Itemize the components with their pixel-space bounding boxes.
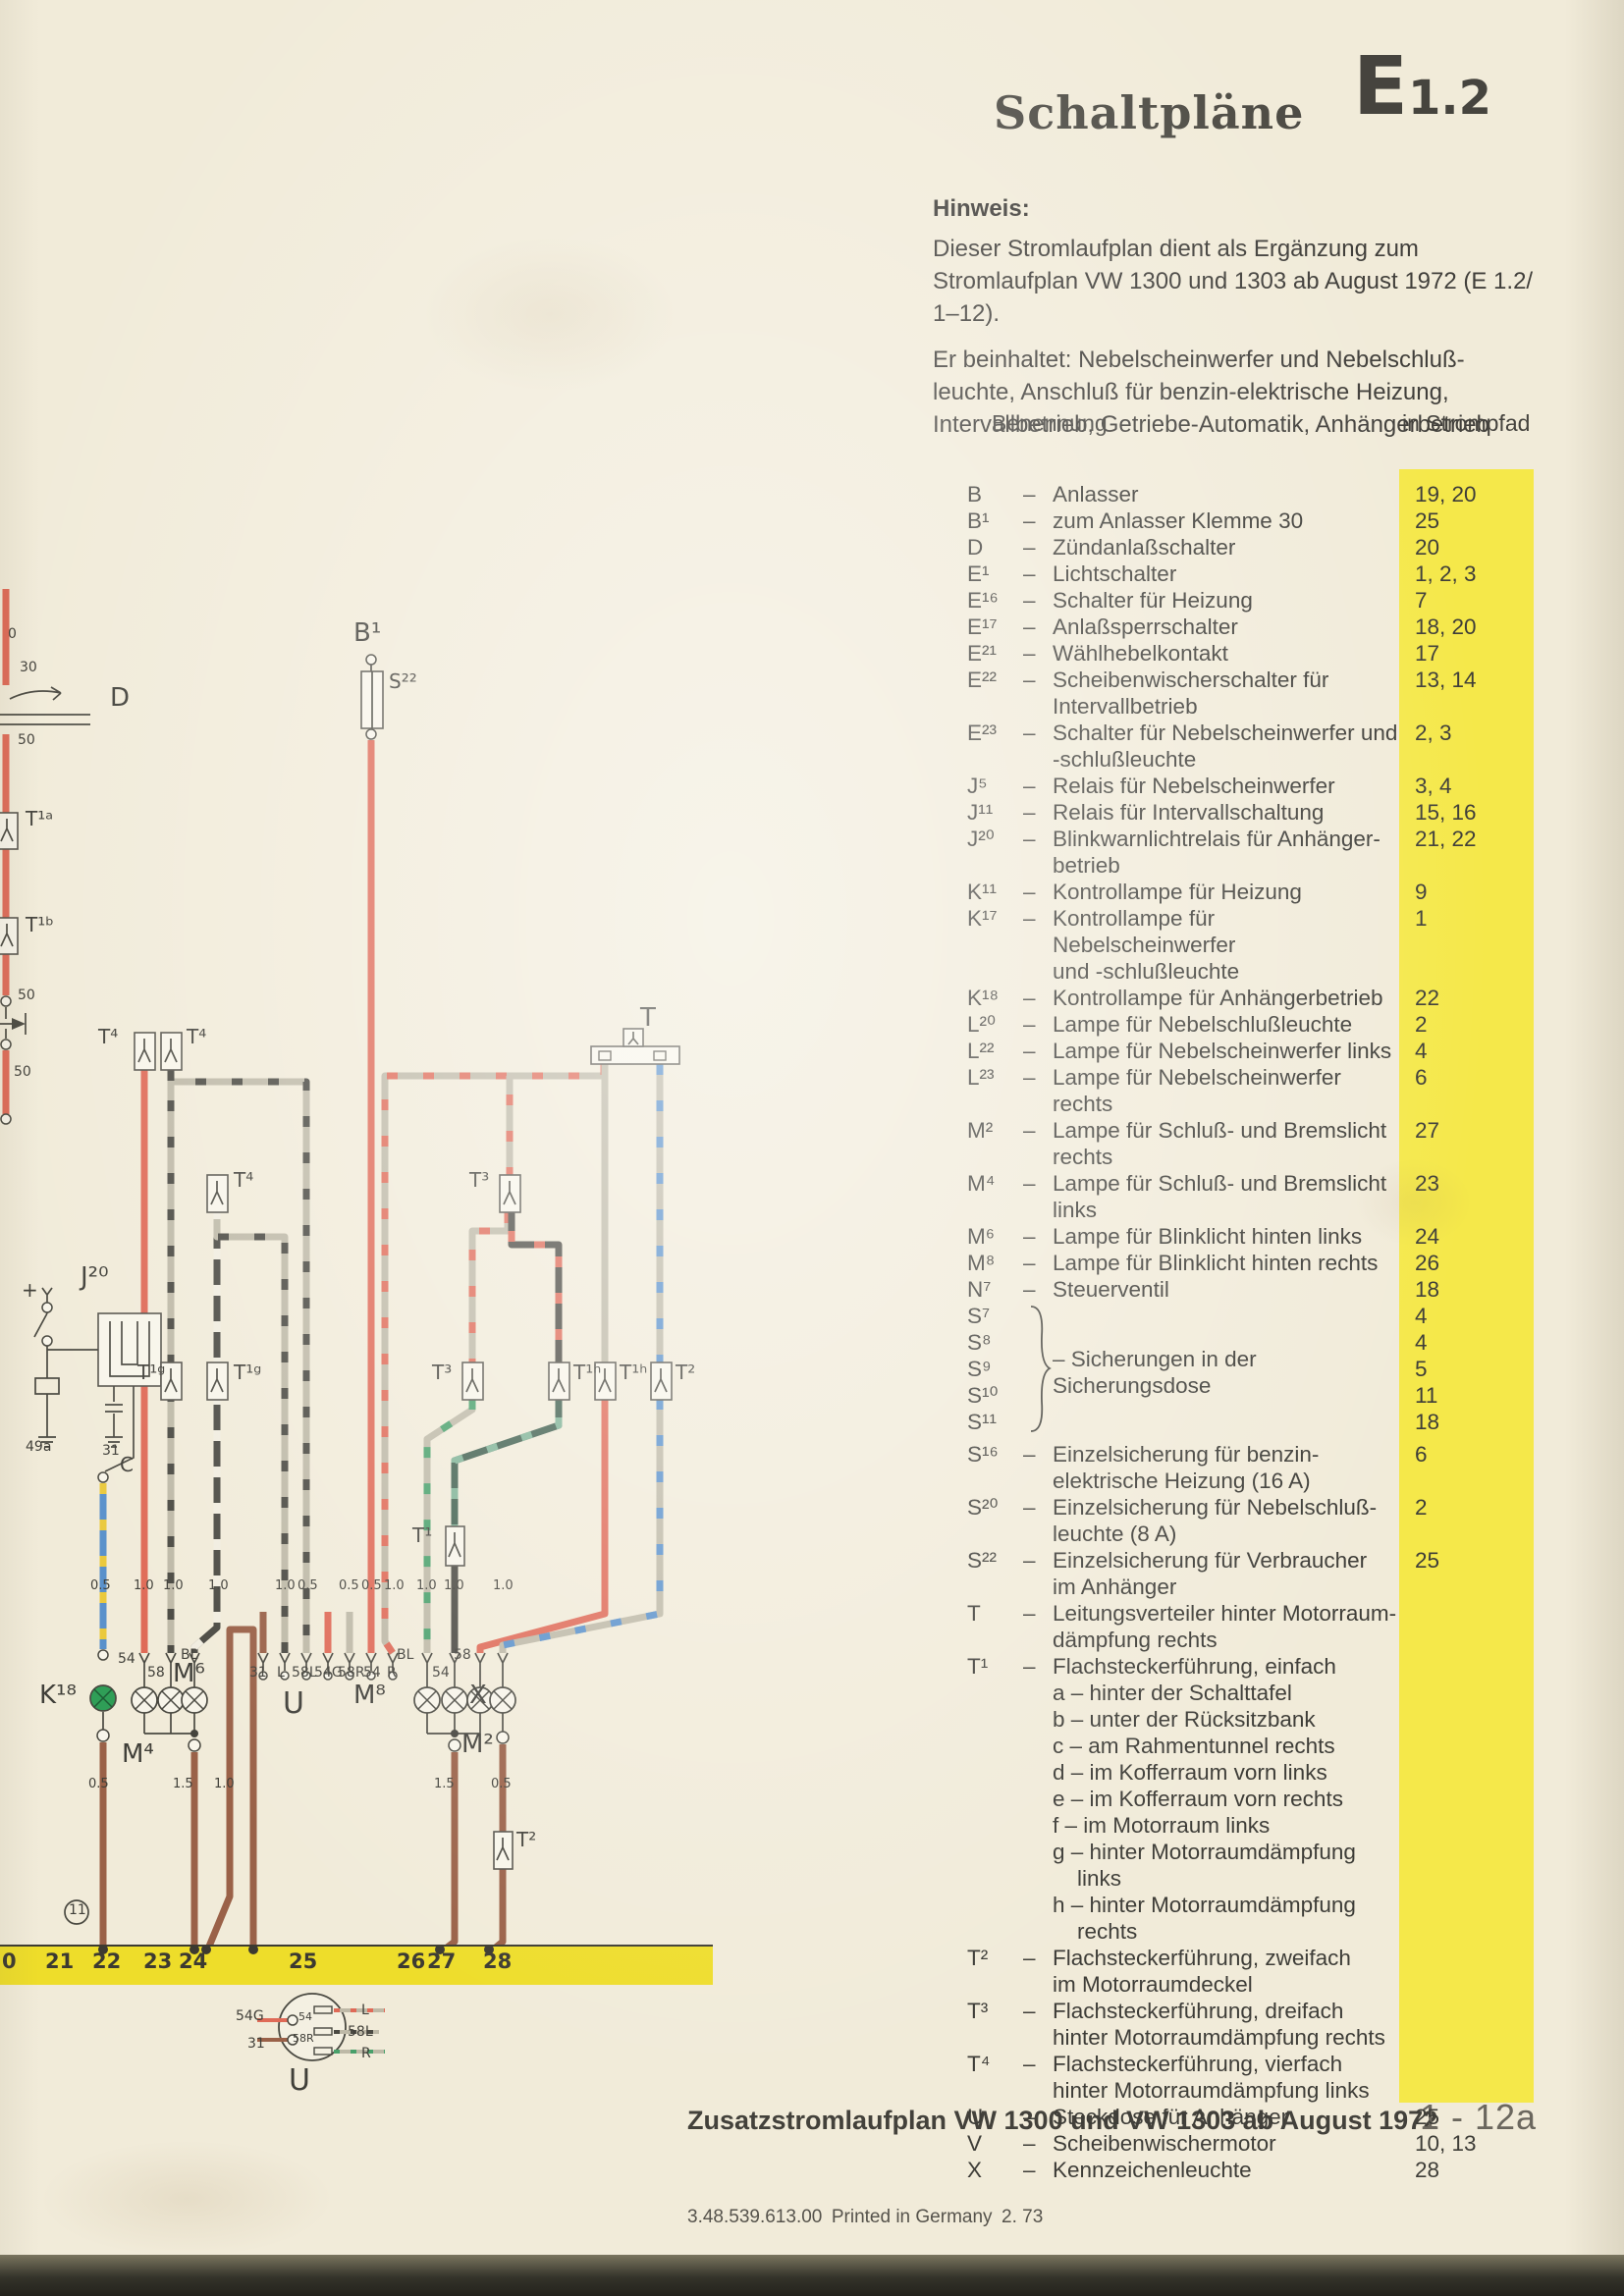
- legend-row: L²³–Lampe für Nebelscheinwerfer rechts6: [967, 1064, 1537, 1117]
- legend-code: J²⁰: [967, 826, 1023, 852]
- legend-strompfad-value: 18, 20: [1402, 614, 1537, 640]
- flat-connector-t1h-b: [595, 1362, 616, 1400]
- legend-code: T⁴: [967, 2051, 1023, 2077]
- legend-description-line: Anlasser: [1053, 481, 1402, 507]
- flat-connector-t4-mid: [207, 1175, 228, 1212]
- legend-description-line: Steckdose für Anhänger: [1053, 2104, 1402, 2130]
- legend-description: Flachsteckerführung, zweifachim Motorrau…: [1053, 1945, 1402, 1998]
- flat-connector-t3-row: [462, 1362, 483, 1400]
- legend-description: Einzelsicherung für Nebelschluß-leuchte …: [1053, 1494, 1402, 1547]
- legend-row: J⁵–Relais für Nebelscheinwerfer3, 4: [967, 773, 1537, 799]
- pin-end-circle: [367, 1672, 375, 1680]
- legend-row: M²–Lampe für Schluß- und Bremslichtrecht…: [967, 1117, 1537, 1170]
- legend-row: M⁶–Lampe für Blinklicht hinten links24: [967, 1223, 1537, 1250]
- legend-description-line: Flachsteckerführung, zweifach: [1053, 1945, 1402, 1971]
- text-line: S⁷: [967, 1303, 1023, 1329]
- legend-description-line: Lampe für Schluß- und Bremslicht: [1053, 1117, 1402, 1144]
- legend-row: T¹–Flachsteckerführung, einfacha – hinte…: [967, 1653, 1537, 1945]
- legend-row: X–Kennzeichenleuchte28: [967, 2157, 1537, 2183]
- page-title: Schaltpläne: [994, 86, 1318, 139]
- legend-row: B–Anlasser19, 20: [967, 481, 1537, 507]
- flat-connector-t1g-b: [207, 1362, 228, 1400]
- legend-description: Relais für Intervallschaltung: [1053, 799, 1402, 826]
- legend-row: K¹¹–Kontrollampe für Heizung9: [967, 879, 1537, 905]
- legend-description-line: hinter Motorraumdämpfung rechts: [1053, 2024, 1402, 2051]
- legend-dash: –: [1023, 667, 1053, 693]
- j20-c-lead: [105, 1386, 134, 1471]
- legend-row: E²³–Schalter für Nebelscheinwerfer und-s…: [967, 720, 1537, 773]
- pin-fork-icon: [366, 1653, 376, 1671]
- legend-dash: –: [1023, 1011, 1053, 1038]
- legend-header-name: Benennung: [992, 410, 1108, 436]
- legend-description-line: Einzelsicherung für benzin-: [1053, 1441, 1402, 1468]
- legend-row: U–Steckdose für Anhänger25: [967, 2104, 1537, 2130]
- legend-description: Kontrollampe für Nebelscheinwerferund -s…: [1053, 905, 1402, 985]
- pin-fork-icon: [258, 1653, 268, 1671]
- component-legend: B–Anlasser19, 20B¹–zum Anlasser Klemme 3…: [967, 481, 1537, 2183]
- legend-strompfad-value: 1: [1402, 905, 1537, 932]
- legend-description-line: Relais für Intervallschaltung: [1053, 799, 1402, 826]
- legend-description-line: Flachsteckerführung, vierfach: [1053, 2051, 1402, 2077]
- legend-code: L²²: [967, 1038, 1023, 1064]
- legend-code: S²⁰: [967, 1494, 1023, 1521]
- legend-dash: –: [1023, 587, 1053, 614]
- legend-row: T³–Flachsteckerführung, dreifachhinter M…: [967, 1998, 1537, 2051]
- legend-strompfad-value: 17: [1402, 640, 1537, 667]
- x-junction: [103, 1712, 503, 1732]
- legend-row: S²⁰–Einzelsicherung für Nebelschluß-leuc…: [967, 1494, 1537, 1547]
- pin-fork-icon: [475, 1653, 485, 1671]
- flat-connector-t2-lower: [494, 1832, 513, 1869]
- legend-strompfad-value: 2: [1402, 1011, 1537, 1038]
- legend-description: zum Anlasser Klemme 30: [1053, 507, 1402, 534]
- legend-row: E²²–Scheibenwischerschalter fürIntervall…: [967, 667, 1537, 720]
- legend-row: K¹⁸–Kontrollampe für Anhängerbetrieb22: [967, 985, 1537, 1011]
- flat-connector-t3-mid: [500, 1175, 520, 1212]
- legend-strompfad-value: 25: [1402, 2104, 1537, 2130]
- legend-dash: –: [1023, 1441, 1053, 1468]
- legend-dash: –: [1023, 1945, 1053, 1971]
- legend-dash: –: [1023, 826, 1053, 852]
- connection-circle: [98, 1472, 108, 1482]
- wire-m2-brown: [442, 1752, 455, 1951]
- wire-m2b-red: [480, 1399, 605, 1653]
- legend-description-line: im Anhänger: [1053, 1574, 1402, 1600]
- legend-strompfad-value: 19, 20: [1402, 481, 1537, 507]
- legend-description-line: links: [1053, 1197, 1402, 1223]
- legend-dash: –: [1023, 905, 1053, 932]
- legend-dash: –: [1023, 2130, 1053, 2157]
- pin-fork-icon: [450, 1653, 460, 1671]
- legend-dash: –: [1023, 1547, 1053, 1574]
- legend-description-line: b – unter der Rücksitzbank: [1053, 1706, 1402, 1733]
- text-line: S⁸: [967, 1329, 1023, 1356]
- legend-code: M⁸: [967, 1250, 1023, 1276]
- pin-fork-icon: [323, 1653, 333, 1671]
- legend-code: E¹: [967, 561, 1023, 587]
- legend-row: K¹⁷–Kontrollampe für Nebelscheinwerferun…: [967, 905, 1537, 985]
- legend-row: S¹⁶–Einzelsicherung für benzin-elektrisc…: [967, 1441, 1537, 1494]
- wire-p2-gray: [217, 1219, 285, 1653]
- legend-code: S¹⁶: [967, 1441, 1023, 1468]
- flat-connector-t1a: [0, 813, 18, 849]
- legend-code: T¹: [967, 1653, 1023, 1680]
- legend-description-line: hinter Motorraumdämpfung links: [1053, 2077, 1402, 2104]
- text-line: 4: [1415, 1329, 1537, 1356]
- joint-circle: [497, 1732, 509, 1743]
- legend-description-line: betrieb: [1053, 852, 1402, 879]
- legend-description: Lichtschalter: [1053, 561, 1402, 587]
- hinweis-heading: Hinweis:: [933, 192, 1561, 225]
- legend-description-line: Anlaßsperrschalter: [1053, 614, 1402, 640]
- legend-strompfad-value: 22: [1402, 985, 1537, 1011]
- legend-description-line: Lampe für Nebelscheinwerfer rechts: [1053, 1064, 1402, 1117]
- legend-row: E¹⁷–Anlaßsperrschalter18, 20: [967, 614, 1537, 640]
- legend-description-line: Blinkwarnlichtrelais für Anhänger-: [1053, 826, 1402, 852]
- bus-dot: [98, 1945, 108, 1954]
- legend-description: Scheibenwischerschalter fürIntervallbetr…: [1053, 667, 1402, 720]
- legend-description-line: Scheibenwischerschalter für: [1053, 667, 1402, 693]
- wire-t3-outB-stripes: [512, 1212, 559, 1362]
- legend-description-line: Flachsteckerführung, einfach: [1053, 1653, 1402, 1680]
- legend-rows-b: S¹⁶–Einzelsicherung für benzin-elektrisc…: [967, 1441, 1537, 2183]
- legend-dash: –: [1023, 985, 1053, 1011]
- legend-description-line: g – hinter Motorraumdämpfung: [1053, 1839, 1402, 1865]
- legend-description-line: leuchte (8 A): [1053, 1521, 1402, 1547]
- legend-description: Zündanlaßschalter: [1053, 534, 1402, 561]
- legend-strompfad-value: 25: [1402, 1547, 1537, 1574]
- legend-row: M⁸–Lampe für Blinklicht hinten rechts26: [967, 1250, 1537, 1276]
- legend-code: S²²: [967, 1547, 1023, 1574]
- legend-code: E²³: [967, 720, 1023, 746]
- connection-circle: [366, 729, 376, 739]
- legend-dash: –: [1023, 507, 1053, 534]
- j20-capacitor-lead: [105, 1386, 123, 1437]
- legend-description: Steckdose für Anhänger: [1053, 2104, 1402, 2130]
- connection-circle: [1, 1040, 11, 1049]
- note-11-circle: [65, 1900, 88, 1924]
- legend-description: Lampe für Nebelschlußleuchte: [1053, 1011, 1402, 1038]
- pin-fork-icon: [422, 1653, 432, 1671]
- legend-strompfad-value: 28: [1402, 2157, 1537, 2183]
- legend-header: Benennung in Strompfad: [992, 410, 1542, 437]
- legend-code: J⁵: [967, 773, 1023, 799]
- wires: [0, 589, 660, 1953]
- legend-strompfad-value: 4: [1402, 1038, 1537, 1064]
- legend-dash: –: [1023, 481, 1053, 507]
- j20-box: [98, 1313, 161, 1386]
- bus-dot: [484, 1945, 494, 1954]
- legend-description: Lampe für Schluß- und Bremslichtrechts: [1053, 1117, 1402, 1170]
- pin-end-circle: [302, 1672, 310, 1680]
- wire-t3-outA: [472, 1212, 508, 1362]
- trailer-socket-detail: [257, 1994, 385, 2060]
- legend-code: U: [967, 2104, 1023, 2130]
- pin-fork-icon: [166, 1653, 176, 1671]
- legend-row: S²²–Einzelsicherung für Verbraucherim An…: [967, 1547, 1537, 1600]
- legend-dash: –: [1023, 1038, 1053, 1064]
- legend-description: Kontrollampe für Anhängerbetrieb: [1053, 985, 1402, 1011]
- wire-t3-outA-stripes: [472, 1212, 508, 1362]
- legend-description: Lampe für Schluß- und Bremslichtlinks: [1053, 1170, 1402, 1223]
- legend-code: E²¹: [967, 640, 1023, 667]
- legend-strompfad-value: 6: [1402, 1064, 1537, 1091]
- legend-description-line: -schlußleuchte: [1053, 746, 1402, 773]
- legend-strompfad-value: 2: [1402, 1494, 1537, 1521]
- wire-pr1-stripes: [385, 1064, 604, 1653]
- legend-description: Scheibenwischermotor: [1053, 2130, 1402, 2157]
- bus-dot: [435, 1945, 445, 1954]
- legend-description-line: h – hinter Motorraumdämpfung: [1053, 1892, 1402, 1918]
- legend-dash: –: [1023, 1600, 1053, 1627]
- legend-strompfad-value: 10, 13: [1402, 2130, 1537, 2157]
- legend-description: Lampe für Blinklicht hinten links: [1053, 1223, 1402, 1250]
- legend-row: E¹⁶–Schalter für Heizung7: [967, 587, 1537, 614]
- legend-strompfad-value: 21, 22: [1402, 826, 1537, 852]
- legend-code: N⁷: [967, 1276, 1023, 1303]
- legend-code: V: [967, 2130, 1023, 2157]
- legend-row: V–Scheibenwischermotor10, 13: [967, 2130, 1537, 2157]
- legend-dash: –: [1023, 720, 1053, 746]
- brace-icon: [1023, 1303, 1053, 1435]
- text-line: Er beinhaltet: Nebelscheinwerfer und Neb…: [933, 344, 1561, 376]
- connection-circle: [1, 1114, 11, 1124]
- legend-row: J¹¹–Relais für Intervallschaltung15, 16: [967, 799, 1537, 826]
- legend-dash: –: [1023, 773, 1053, 799]
- text-line: Dieser Stromlaufplan dient als Ergänzung…: [933, 233, 1561, 265]
- legend-row: E¹–Lichtschalter1, 2, 3: [967, 561, 1537, 587]
- legend-code: L²⁰: [967, 1011, 1023, 1038]
- legend-description-line: und -schlußleuchte: [1053, 958, 1402, 985]
- legend-description-line: Lampe für Blinklicht hinten rechts: [1053, 1250, 1402, 1276]
- legend-strompfad-value: 9: [1402, 879, 1537, 905]
- footer-print-info: 3.48.539.613.00 Printed in Germany 2. 73: [687, 2207, 1043, 2228]
- legend-rows-a: B–Anlasser19, 20B¹–zum Anlasser Klemme 3…: [967, 481, 1537, 1303]
- legend-description-line: rechts: [1053, 1918, 1402, 1945]
- legend-strompfad-value: 2, 3: [1402, 720, 1537, 746]
- bus-dot: [201, 1945, 211, 1954]
- wiring-diagram: [0, 569, 746, 2101]
- legend-code: K¹¹: [967, 879, 1023, 905]
- legend-description: Blinkwarnlichtrelais für Anhänger-betrie…: [1053, 826, 1402, 879]
- legend-dash: –: [1023, 1653, 1053, 1680]
- pin-fork-icon: [345, 1653, 354, 1671]
- legend-strompfad-value: 20: [1402, 534, 1537, 561]
- ground-49a-icon: [38, 1437, 56, 1447]
- pin-fork-icon: [280, 1653, 290, 1671]
- legend-description: Flachsteckerführung, einfacha – hinter d…: [1053, 1653, 1402, 1945]
- legend-code: M²: [967, 1117, 1023, 1144]
- legend-description: Einzelsicherung für benzin-elektrische H…: [1053, 1441, 1402, 1494]
- hinweis-paragraph-1: Dieser Stromlaufplan dient als Ergänzung…: [933, 233, 1561, 330]
- connection-circle: [42, 1303, 52, 1312]
- pin-fork-icon: [388, 1653, 398, 1671]
- connection-circle: [366, 655, 376, 665]
- legend-code: K¹⁷: [967, 905, 1023, 932]
- legend-code: T: [967, 1600, 1023, 1627]
- fuse-group-dash: –: [1053, 1347, 1065, 1371]
- legend-description-line: Scheibenwischermotor: [1053, 2130, 1402, 2157]
- legend-code: M⁶: [967, 1223, 1023, 1250]
- m4-junction: [144, 1713, 194, 1734]
- legend-description-line: c – am Rahmentunnel rechts: [1053, 1733, 1402, 1759]
- legend-description-line: dämpfung rechts: [1053, 1627, 1402, 1653]
- connection-circle: [288, 2035, 298, 2045]
- legend-description-line: Zündanlaßschalter: [1053, 534, 1402, 561]
- legend-description-line: elektrische Heizung (16 A): [1053, 1468, 1402, 1494]
- legend-description: Lampe für Blinklicht hinten rechts: [1053, 1250, 1402, 1276]
- wire-brown-loop: [206, 1629, 253, 1953]
- fuse-group-label: Sicherungen in der Sicherungsdose: [1053, 1347, 1257, 1398]
- legend-strompfad-value: 13, 14: [1402, 667, 1537, 693]
- pin-end-circle: [324, 1672, 332, 1680]
- legend-description-line: Kontrollampe für Anhängerbetrieb: [1053, 985, 1402, 1011]
- legend-description-line: Wählhebelkontakt: [1053, 640, 1402, 667]
- bus-dot: [189, 1945, 199, 1954]
- joint-circle: [189, 1739, 200, 1751]
- legend-description-line: Kennzeichenleuchte: [1053, 2157, 1402, 2183]
- legend-fuse-group: S⁷S⁸S⁹S¹⁰S¹¹ – Sicherungen in der Sicher…: [967, 1303, 1537, 1441]
- legend-dash: –: [1023, 561, 1053, 587]
- page-code: E1.2: [1353, 47, 1491, 128]
- distributor-t: [591, 1029, 679, 1064]
- legend-description: Wählhebelkontakt: [1053, 640, 1402, 667]
- joint-circle: [449, 1739, 460, 1751]
- text-line: 1–12).: [933, 297, 1561, 330]
- legend-description: Leitungsverteiler hinter Motorraum-dämpf…: [1053, 1600, 1402, 1653]
- legend-description-line: links: [1053, 1865, 1402, 1892]
- legend-dash: –: [1023, 1117, 1053, 1144]
- legend-dash: –: [1023, 1064, 1053, 1091]
- legend-row: J²⁰–Blinkwarnlichtrelais für Anhänger-be…: [967, 826, 1537, 879]
- legend-strompfad-value: 26: [1402, 1250, 1537, 1276]
- legend-description-line: Schalter für Heizung: [1053, 587, 1402, 614]
- pin-end-circle: [259, 1672, 267, 1680]
- manual-page: Schaltpläne E1.2 Hinweis: Dieser Stromla…: [0, 0, 1624, 2296]
- legend-row: N⁷–Steuerventil18: [967, 1276, 1537, 1303]
- legend-description-line: Lampe für Nebelscheinwerfer links: [1053, 1038, 1402, 1064]
- text-line: 11: [1415, 1382, 1537, 1409]
- legend-description-line: Kontrollampe für Heizung: [1053, 879, 1402, 905]
- legend-dash: –: [1023, 879, 1053, 905]
- legend-code: X: [967, 2157, 1023, 2183]
- legend-dash: –: [1023, 1250, 1053, 1276]
- fuse-group-values: 4451118: [1402, 1303, 1537, 1441]
- legend-description: Steuerventil: [1053, 1276, 1402, 1303]
- legend-description-line: Leitungsverteiler hinter Motorraum-: [1053, 1600, 1402, 1627]
- legend-description: Relais für Nebelscheinwerfer: [1053, 773, 1402, 799]
- text-line: S¹⁰: [967, 1382, 1023, 1409]
- pin-fork-icon: [189, 1653, 199, 1671]
- legend-dash: –: [1023, 1494, 1053, 1521]
- flat-connector-t4-right: [161, 1033, 182, 1070]
- legend-description-line: Schalter für Nebelscheinwerfer und: [1053, 720, 1402, 746]
- flat-connector-t1b: [0, 918, 18, 954]
- connection-circle: [1, 996, 11, 1006]
- wire-p2-stripes: [217, 1219, 285, 1653]
- legend-description-line: Lichtschalter: [1053, 561, 1402, 587]
- legend-row: B¹–zum Anlasser Klemme 3025: [967, 507, 1537, 534]
- ignition-switch-symbol: [0, 687, 90, 724]
- junction-dot: [190, 1730, 198, 1737]
- page-bottom-edge: [0, 2255, 1624, 2296]
- legend-row: L²⁰–Lampe für Nebelschlußleuchte2: [967, 1011, 1537, 1038]
- legend-code: B: [967, 481, 1023, 507]
- legend-dash: –: [1023, 1998, 1053, 2024]
- legend-description: Lampe für Nebelscheinwerfer links: [1053, 1038, 1402, 1064]
- legend-dash: –: [1023, 640, 1053, 667]
- wire-t1-green: [455, 1399, 559, 1526]
- wire-t3-outB: [512, 1212, 559, 1362]
- pin-end-circle: [389, 1672, 397, 1680]
- text-line: leuchte, Anschluß für benzin-elektrische…: [933, 376, 1561, 408]
- wire-pr1-gray: [385, 1064, 604, 1653]
- flat-connector-t4-left: [135, 1033, 155, 1070]
- legend-code: E²²: [967, 667, 1023, 693]
- legend-dash: –: [1023, 614, 1053, 640]
- legend-row: D–Zündanlaßschalter20: [967, 534, 1537, 561]
- text-line: Stromlaufplan VW 1300 und 1303 ab August…: [933, 265, 1561, 297]
- legend-description: Schalter für Nebelscheinwerfer und-schlu…: [1053, 720, 1402, 773]
- legend-description-line: im Motorraumdeckel: [1053, 1971, 1402, 1998]
- legend-strompfad-value: 25: [1402, 507, 1537, 534]
- fuse-group-text: – Sicherungen in der Sicherungsdose: [1053, 1303, 1402, 1441]
- legend-description: Flachsteckerführung, vierfachhinter Moto…: [1053, 2051, 1402, 2104]
- legend-row: M⁴–Lampe für Schluß- und Bremslichtlinks…: [967, 1170, 1537, 1223]
- legend-description: Flachsteckerführung, dreifachhinter Moto…: [1053, 1998, 1402, 2051]
- text-line: S⁹: [967, 1356, 1023, 1382]
- legend-row: T²–Flachsteckerführung, zweifachim Motor…: [967, 1945, 1537, 1998]
- legend-strompfad-value: 3, 4: [1402, 773, 1537, 799]
- legend-strompfad-value: 7: [1402, 587, 1537, 614]
- connection-circle: [42, 1336, 52, 1346]
- legend-description-line: Steuerventil: [1053, 1276, 1402, 1303]
- legend-strompfad-value: 23: [1402, 1170, 1537, 1197]
- junction-dot: [451, 1730, 459, 1737]
- legend-description: Schalter für Heizung: [1053, 587, 1402, 614]
- pin-fork-icon: [139, 1653, 149, 1671]
- pin-fork-icon: [498, 1653, 508, 1671]
- legend-description-line: Einzelsicherung für Nebelschluß-: [1053, 1494, 1402, 1521]
- legend-description: Lampe für Nebelscheinwerfer rechts: [1053, 1064, 1402, 1117]
- legend-header-strompfad: in Strompfad: [1402, 410, 1530, 437]
- legend-description-line: Lampe für Schluß- und Bremslicht: [1053, 1170, 1402, 1197]
- legend-description-line: rechts: [1053, 1144, 1402, 1170]
- legend-description-line: Intervallbetrieb: [1053, 693, 1402, 720]
- pin-end-circle: [281, 1672, 289, 1680]
- legend-description: Kennzeichenleuchte: [1053, 2157, 1402, 2183]
- legend-dash: –: [1023, 534, 1053, 561]
- legend-strompfad-value: 18: [1402, 1276, 1537, 1303]
- legend-code: T²: [967, 1945, 1023, 1971]
- fuse-group-brace: [1023, 1303, 1053, 1441]
- legend-row: T⁴–Flachsteckerführung, vierfachhinter M…: [967, 2051, 1537, 2104]
- page-code-number: 1.2: [1408, 75, 1491, 122]
- legend-dash: –: [1023, 799, 1053, 826]
- legend-row: E²¹–Wählhebelkontakt17: [967, 640, 1537, 667]
- legend-code: M⁴: [967, 1170, 1023, 1197]
- legend-dash: –: [1023, 2157, 1053, 2183]
- flat-connector-t2-row: [651, 1362, 672, 1400]
- ground-31-icon: [105, 1437, 123, 1447]
- legend-code: E¹⁶: [967, 587, 1023, 614]
- legend-description-line: f – im Motorraum links: [1053, 1812, 1402, 1839]
- bus-dot: [248, 1945, 258, 1954]
- legend-dash: –: [1023, 2051, 1053, 2077]
- legend-description-line: Lampe für Blinklicht hinten links: [1053, 1223, 1402, 1250]
- text-line: S¹¹: [967, 1409, 1023, 1435]
- legend-dash: –: [1023, 1223, 1053, 1250]
